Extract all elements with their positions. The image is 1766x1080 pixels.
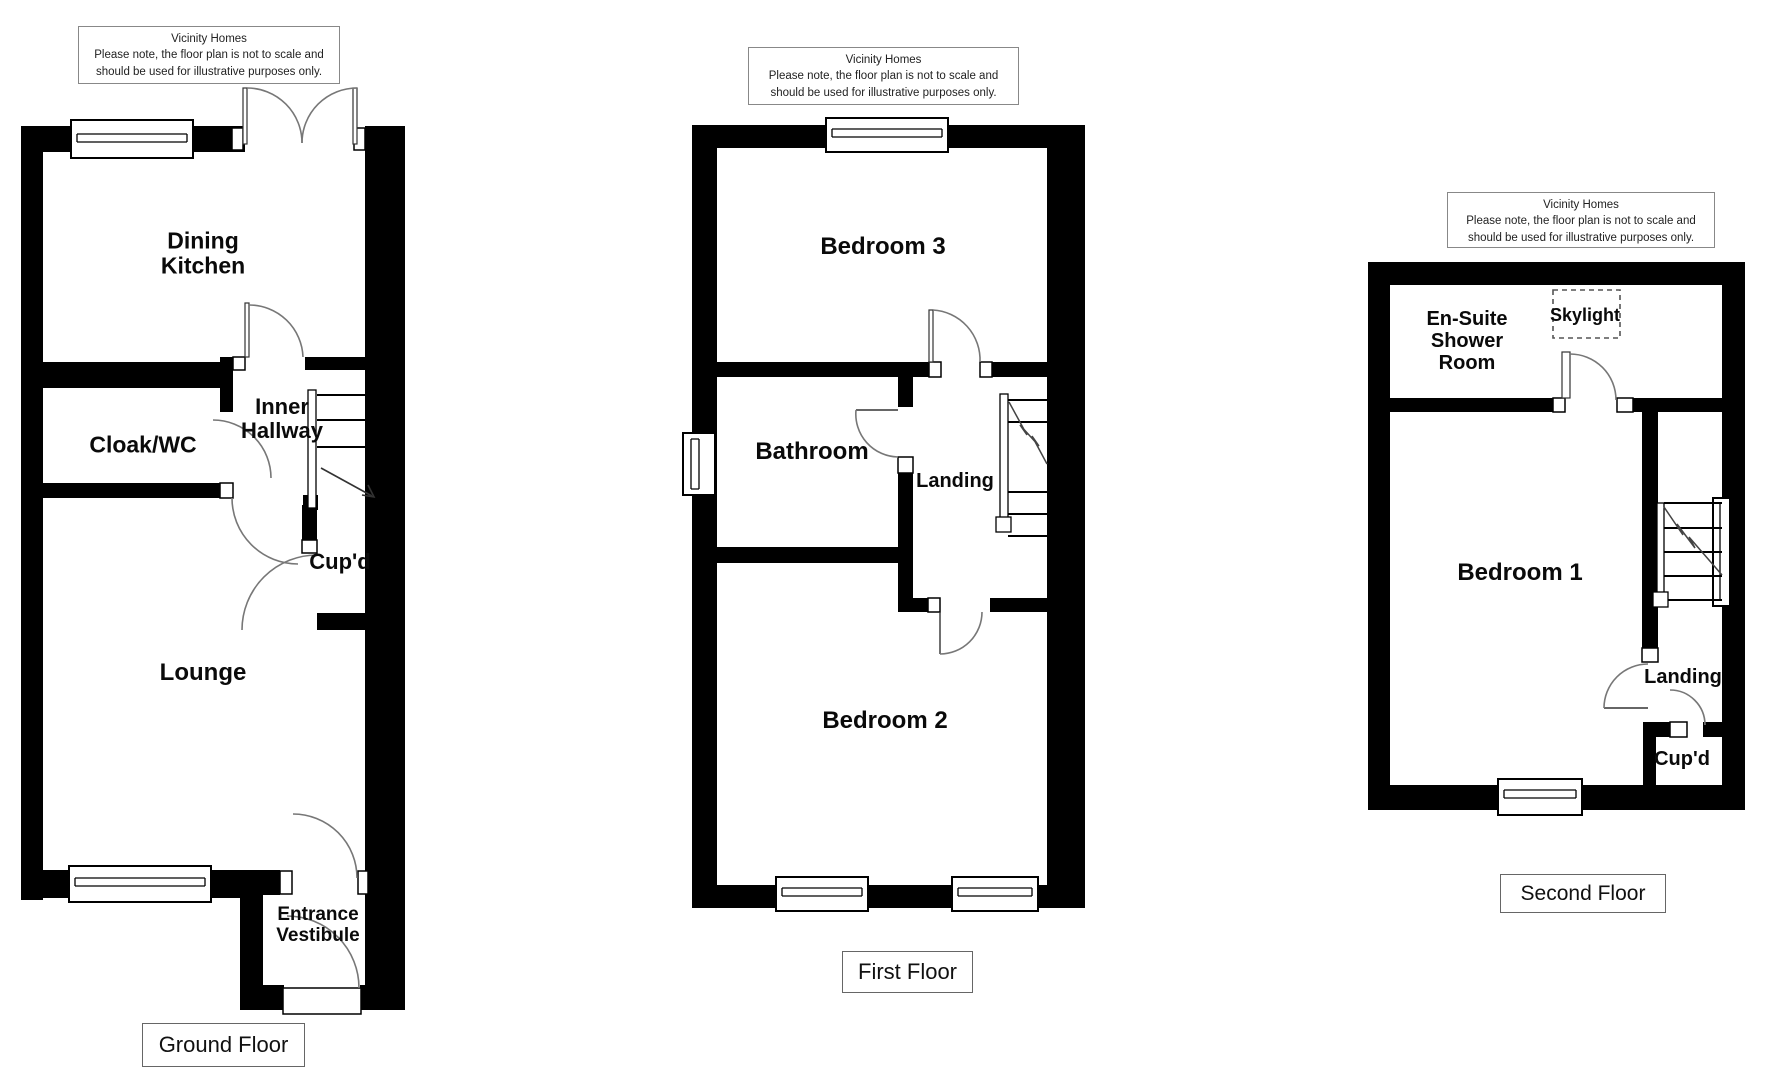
door-arc-icon: [213, 88, 359, 988]
room-label-cupboard-ground: Cup'd: [309, 550, 370, 574]
room-label-skylight: Skylight: [1550, 306, 1620, 326]
room-label-landing-second: Landing: [1644, 666, 1722, 688]
room-label-lounge: Lounge: [160, 660, 247, 686]
ground-floor-plan: Vicinity Homes Please note, the floor pl…: [21, 26, 405, 1066]
disclaimer-note-first: Vicinity Homes Please note, the floor pl…: [748, 47, 1019, 105]
first-floor-plan: Vicinity Homes Please note, the floor pl…: [692, 47, 1085, 991]
disclaimer-note-ground: Vicinity Homes Please note, the floor pl…: [78, 26, 340, 84]
room-label-bedroom2: Bedroom 2: [822, 708, 947, 734]
first-floor-linework: [680, 47, 1085, 991]
room-label-dining-kitchen: Dining Kitchen: [161, 229, 245, 280]
second-floor-linework: [1368, 192, 1766, 911]
room-label-cloak-wc: Cloak/WC: [89, 432, 196, 457]
floorplan-page: Vicinity Homes Please note, the floor pl…: [0, 0, 1766, 1080]
room-label-ensuite: En-Suite Shower Room: [1426, 308, 1507, 374]
floor-title-first: First Floor: [842, 951, 973, 993]
room-label-entrance-vestibule: Entrance Vestibule: [276, 905, 359, 947]
room-label-bathroom: Bathroom: [755, 439, 868, 465]
room-label-bedroom1: Bedroom 1: [1457, 560, 1582, 586]
room-label-landing-first: Landing: [916, 470, 994, 492]
floor-title-first-text: First Floor: [858, 959, 957, 985]
floor-title-second-text: Second Floor: [1521, 882, 1646, 906]
stairs-icon: [1653, 503, 1722, 607]
floor-title-second: Second Floor: [1500, 874, 1666, 913]
disclaimer-note-second: Vicinity Homes Please note, the floor pl…: [1447, 192, 1715, 248]
room-label-cupboard-second: Cup'd: [1654, 748, 1710, 770]
room-label-inner-hallway: Inner Hallway: [241, 395, 323, 443]
entrance-door: [283, 988, 361, 1014]
floor-title-ground: Ground Floor: [142, 1023, 305, 1067]
floor-title-ground-text: Ground Floor: [159, 1032, 289, 1058]
room-label-bedroom3: Bedroom 3: [820, 234, 945, 260]
second-floor-plan: Vicinity Homes Please note, the floor pl…: [1368, 192, 1766, 911]
stairs-icon: [996, 394, 1047, 536]
